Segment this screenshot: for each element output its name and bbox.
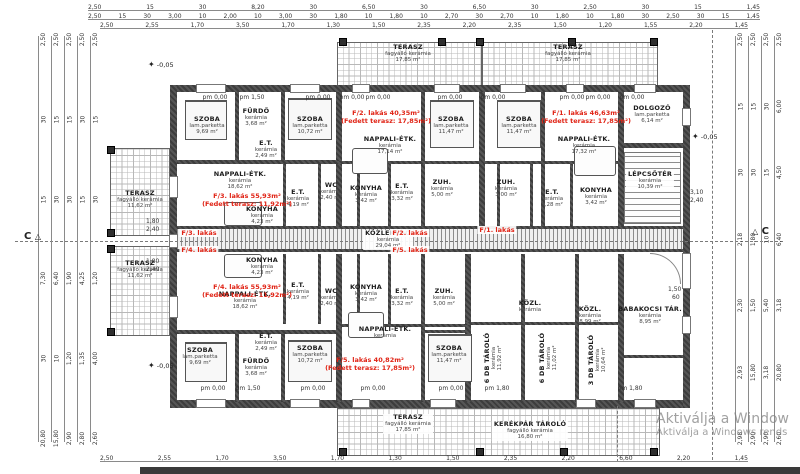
- floor-level-label: pm 0,00: [438, 94, 463, 101]
- wall: [336, 254, 342, 402]
- dim-value: 1,45: [735, 22, 748, 29]
- dim-value: 1,50: [372, 22, 385, 29]
- watermark-line1: Aktiválja a Window: [656, 411, 800, 427]
- dim-value: 30: [53, 195, 60, 203]
- window-opening: [682, 108, 691, 126]
- room-label: KONYHA kerámia 3,42 m²: [350, 284, 382, 304]
- dim-value: 15: [737, 102, 744, 110]
- room-area: 2,40 m²: [320, 301, 342, 307]
- dim-value: 1,70: [215, 455, 228, 462]
- dim-value: 1,90: [67, 272, 74, 285]
- dim-value: 2,50: [100, 455, 113, 462]
- room-label: KONYHA kerámia 3,42 m²: [350, 185, 382, 205]
- room-name: SZOBA: [501, 116, 536, 123]
- dim-value: 2,90: [67, 432, 74, 445]
- dim-value: 6,50: [362, 4, 375, 11]
- floor-level-label: pm 0,00: [439, 385, 464, 392]
- wall: [624, 143, 683, 148]
- dim-value: 2,50: [777, 33, 784, 46]
- dim-value: 60: [672, 294, 680, 301]
- dim-value: 1,50: [751, 299, 758, 312]
- section-label: C: [24, 231, 31, 242]
- room-label: KÖZL. kerámia: [519, 300, 542, 313]
- room-label: SZOBA lam.parketta 10,72 m²: [292, 345, 327, 365]
- wall: [421, 330, 465, 333]
- room-label: E.T. kerámia 3,32 m²: [391, 288, 413, 308]
- wall: [235, 92, 239, 162]
- dim-row-top-3: 2,502,551,703,501,701,301,502,352,202,35…: [100, 20, 748, 29]
- apartment-label: F/2. lakás: [390, 229, 429, 237]
- window-opening: [352, 399, 370, 408]
- dim-value: 2,35: [504, 455, 517, 462]
- apartment-label-line2: (Fedett terasz: 17,85m²): [541, 117, 631, 125]
- apartment-label-line1: F/5. lakás: [392, 246, 427, 254]
- dim-value: 3,00: [279, 13, 292, 20]
- wall: [624, 355, 683, 358]
- dim-value: 15: [92, 115, 99, 123]
- elevation-value: -0,05: [701, 133, 718, 141]
- dim-value: 2,50: [93, 33, 100, 46]
- room-area: 11,02 m²: [553, 333, 559, 384]
- room-area: 4,23 m²: [246, 270, 278, 276]
- apartment-label: F/5. lakás: [390, 246, 429, 254]
- dim-value: 1,45: [746, 13, 759, 20]
- floor-level-label: pm 0,00: [201, 385, 226, 392]
- room-area: 11,47 m²: [501, 129, 536, 135]
- dim-value: 2,55: [158, 455, 171, 462]
- room-area: 17,14 m²: [364, 149, 416, 155]
- room-area: 8,99 m²: [579, 319, 602, 325]
- dim-value: 2,30: [738, 299, 745, 312]
- pillar: [476, 38, 484, 46]
- apartment-label: F/1. lakás 46,63m² (Fedett terasz: 17,85…: [541, 109, 631, 125]
- elevation-marker: ✦ -0,05: [148, 60, 174, 69]
- room-material: kerámia: [519, 307, 542, 313]
- room-area: 16,80 m²: [494, 434, 566, 440]
- room-label: LÉPCSŐTÉR kerámia 10,39 m²: [626, 171, 674, 191]
- pillar: [107, 328, 115, 336]
- section-label: C: [762, 226, 769, 237]
- dim-value: 10: [53, 355, 60, 363]
- pillar: [107, 146, 115, 154]
- dim-value: 2,40: [690, 197, 703, 204]
- axis-line-vertical: [712, 30, 713, 460]
- dim-value: 1,20: [599, 22, 612, 29]
- dim-value: 1,30: [327, 22, 340, 29]
- room-label: 6 DB TÁROLÓ kerámia 11,02 m²: [539, 333, 559, 384]
- dim-value: 10: [420, 13, 428, 20]
- dim-col-left-3: 2,5015301,901,202,90: [64, 36, 75, 442]
- room-area: 6,14 m²: [633, 118, 671, 124]
- floor-plan-drawing: 2,5015308,20306,50306,50302,5030151,45 2…: [0, 0, 800, 474]
- dim-value: 30: [40, 115, 47, 123]
- room-label: SZOBA lam.parketta 10,72 m²: [292, 116, 327, 136]
- dim-value: 10: [365, 13, 373, 20]
- room-label: KONYHA kerámia 4,23 m²: [246, 206, 278, 226]
- room-label: KÖZL. kerámia 8,99 m²: [579, 306, 602, 326]
- dim-value: 30: [420, 4, 428, 11]
- floor-level-label: pm 1,80: [485, 385, 510, 392]
- room-area: 8,95 m²: [618, 319, 682, 325]
- apartment-label: F/3. lakás: [179, 229, 218, 237]
- apartment-label-line1: F/1. lakás: [479, 226, 514, 234]
- window-opening: [682, 316, 691, 334]
- floor-level-label: pm 0,00: [203, 94, 228, 101]
- dim-value: 1,80: [390, 13, 403, 20]
- dim-value: 30: [143, 13, 151, 20]
- apartment-label: F/2. lakás 40,35m² (Fedett terasz: 17,85…: [341, 109, 431, 125]
- apartment-label-line2: (Fedett terasz: 11,92m²): [202, 200, 292, 208]
- dim-value: 30: [750, 169, 757, 177]
- dim-value: 2,50: [666, 13, 679, 20]
- dim-value: 2,40: [146, 266, 159, 273]
- wall: [683, 85, 690, 408]
- dim-value: 8,20: [251, 4, 264, 11]
- room-area: 3,42 m²: [350, 198, 382, 204]
- pillar: [107, 245, 115, 253]
- dim-value: 10: [199, 13, 207, 20]
- dim-value: 6,00: [777, 99, 784, 112]
- dim-value: 15,80: [54, 430, 61, 447]
- room-name: SZOBA: [431, 345, 466, 352]
- dim-value: 30: [475, 13, 483, 20]
- apartment-label-line1: F/5. lakás 40,82m²: [325, 356, 415, 364]
- dim-value: 15: [750, 102, 757, 110]
- dim-value: 20,80: [41, 430, 48, 447]
- room-material: kerámia: [359, 333, 411, 339]
- floor-level-label: pm 0,00: [301, 385, 326, 392]
- dim-value: 30: [199, 4, 207, 11]
- dim-value: 15: [694, 4, 702, 11]
- room-area: 3,42 m²: [580, 200, 612, 206]
- dim-value: 6,40: [777, 232, 784, 245]
- room-area: 3,00 m²: [495, 192, 517, 198]
- dim-value: 1,20: [93, 272, 100, 285]
- window-opening: [196, 399, 226, 408]
- room-area: 3,68 m²: [243, 121, 270, 127]
- dim-value: 2,50: [54, 33, 61, 46]
- room-label: TERASZ fagyálló kerámia 11,62 m²: [117, 190, 163, 210]
- room-area: 17,32 m²: [558, 149, 610, 155]
- dim-value: 30: [737, 169, 744, 177]
- floor-level-label: pm 1,50: [240, 94, 265, 101]
- dim-value: 30: [92, 195, 99, 203]
- wall: [177, 249, 683, 252]
- dim-value: 3,50: [236, 22, 249, 29]
- dim-value: 2,50: [583, 4, 596, 11]
- room-area: 2,40 m²: [320, 195, 342, 201]
- apartment-label: F/4. lakás 55,93m² (Fedett terasz: 11,92…: [202, 283, 292, 299]
- elevation-star-icon: ✦: [148, 60, 155, 69]
- dim-value: 30: [531, 4, 539, 11]
- dim-value: 1,50: [553, 22, 566, 29]
- elevation-marker: ✦ -0,05: [692, 132, 718, 141]
- room-area: 9,69 m²: [182, 360, 217, 366]
- dim-value: 30: [40, 355, 47, 363]
- dim-value: 1,50: [668, 286, 681, 293]
- dim-value: 2,50: [764, 33, 771, 46]
- room-label: SZOBA lam.parketta 11,47 m²: [431, 345, 466, 365]
- elevation-marker: ✦ -0,05: [148, 361, 174, 370]
- dim-value: 4,00: [93, 352, 100, 365]
- entrance-door-swing: [650, 253, 681, 284]
- room-area: 10,39 m²: [628, 184, 672, 190]
- window-opening: [290, 399, 320, 408]
- dim-value: 4,25: [80, 272, 87, 285]
- apartment-label: F/1. lakás: [477, 226, 516, 234]
- dim-value: 3,00: [168, 13, 181, 20]
- dim-value: 1,70: [281, 22, 294, 29]
- apartment-label: F/4. lakás: [179, 246, 218, 254]
- dim-value: 15: [66, 115, 73, 123]
- room-area: 5,00 m²: [433, 301, 455, 307]
- window-opening: [500, 84, 526, 93]
- room-label: 6 DB TÁROLÓ kerámia 11,92 m²: [484, 333, 504, 384]
- dim-col-left-2: 2,5015306,401015,80: [51, 36, 62, 442]
- dim-value: 2,50: [751, 33, 758, 46]
- apartment-label-line1: F/2. lakás: [392, 229, 427, 237]
- pillar: [438, 38, 446, 46]
- section-marker-left: C △: [24, 231, 41, 242]
- dim-value: 1,80: [146, 218, 159, 225]
- wall: [530, 164, 533, 226]
- dim-value: 1,70: [331, 455, 344, 462]
- dim-row-bottom: 2,502,551,703,501,701,301,502,352,206,60…: [100, 453, 748, 462]
- room-label: E.T. kerámia 2,49 m²: [255, 333, 277, 353]
- apartment-label: F/5. lakás 40,82m² (Fedett terasz: 17,85…: [325, 356, 415, 372]
- dim-col-left-4: 2,5030154,251,352,80: [77, 36, 88, 442]
- dim-value: 2,55: [145, 22, 158, 29]
- floor-level-label: pm 0,00: [586, 94, 611, 101]
- elevation-value: -0,05: [157, 61, 174, 69]
- room-area: 11,92 m²: [498, 333, 504, 384]
- dim-col-right-2: 2,5015301,801,5015,802,90: [748, 36, 759, 442]
- dim-value: 2,80: [80, 432, 87, 445]
- window-opening: [430, 399, 456, 408]
- apartment-label-line2: (Fedett terasz: 17,85m²): [325, 364, 415, 372]
- wall: [170, 85, 690, 92]
- room-label: NAPPALI-ÉTK. kerámia 17,32 m²: [558, 136, 610, 156]
- room-label: E.T. kerámia 3,28 m²: [541, 189, 563, 209]
- window-opening: [566, 84, 584, 93]
- dim-value: 1,35: [80, 352, 87, 365]
- room-label: TERASZ fagyálló kerámia 17,85 m²: [545, 44, 591, 64]
- room-name: SZOBA: [433, 116, 468, 123]
- dim-value: 2,35: [417, 22, 430, 29]
- dim-col-left-5: 2,5015301,204,002,60: [90, 36, 101, 442]
- room-area: 4,23 m²: [246, 219, 278, 225]
- dim-value: 10: [254, 13, 262, 20]
- wall: [281, 332, 285, 402]
- dim-value: 15,80: [751, 363, 758, 380]
- dim-value: 2,00: [224, 13, 237, 20]
- room-label: SZOBA lam.parketta 9,69 m²: [189, 116, 224, 136]
- room-area: 17,85 m²: [545, 57, 591, 63]
- room-label: SZOBA lam.parketta 11,47 m²: [501, 116, 536, 136]
- dim-value: 3,50: [273, 455, 286, 462]
- room-label: NAPPALI-ÉTK. kerámia 17,14 m²: [364, 136, 416, 156]
- apartment-label-line1: F/2. lakás 40,35m²: [341, 109, 431, 117]
- room-area: 2,49 m²: [255, 346, 277, 352]
- apartment-label-line2: (Fedett terasz: 17,85m²): [341, 117, 431, 125]
- dim-value: 30: [641, 13, 649, 20]
- dim-value: 15: [119, 13, 127, 20]
- dim-value: 20,80: [777, 363, 784, 380]
- apartment-label-line1: F/3. lakás 55,93m²: [202, 192, 292, 200]
- dim-value: 1,80: [334, 13, 347, 20]
- room-name: SZOBA: [292, 345, 327, 352]
- room-area: 10,64 m²: [602, 335, 608, 386]
- room-name: DOLGOZÓ: [633, 105, 671, 112]
- window-opening: [352, 84, 370, 93]
- window-opening: [634, 84, 656, 93]
- room-label: FÜRDŐ kerámia 3,68 m²: [243, 108, 270, 128]
- dim-value: 2,20: [689, 22, 702, 29]
- room-area: 18,62 m²: [219, 304, 271, 310]
- dim-value: 30: [697, 13, 705, 20]
- room-label: KONYHA kerámia 3,42 m²: [580, 187, 612, 207]
- dim-row-top-1: 2,5015308,20306,50306,50302,5030151,45: [88, 2, 760, 11]
- dim-value: 10: [531, 13, 539, 20]
- dim-value: 2,18: [738, 232, 745, 245]
- floor-level-label: pm 1,50: [236, 385, 261, 392]
- room-label: E.T. kerámia 2,49 m²: [255, 140, 277, 160]
- section-triangle-icon: △: [35, 232, 41, 241]
- dim-value: 1,55: [644, 22, 657, 29]
- room-label: ZUH. kerámia 5,00 m²: [433, 288, 455, 308]
- room-area: 3,32 m²: [391, 196, 413, 202]
- floor-level-label: pm 0,00: [620, 94, 645, 101]
- dim-value: 5,40: [764, 299, 771, 312]
- dim-value: 30: [309, 13, 317, 20]
- room-area: 5,00 m²: [431, 192, 453, 198]
- floor-level-label: pm 1,80: [618, 385, 643, 392]
- apartment-label-line2: (Fedett terasz: 11,92m²): [202, 291, 292, 299]
- dim-value: 2,35: [508, 22, 521, 29]
- room-area: 3,42 m²: [350, 297, 382, 303]
- window-opening: [169, 296, 178, 318]
- room-area: 2,49 m²: [255, 153, 277, 159]
- dim-value: 1,70: [191, 22, 204, 29]
- room-label: TERASZ fagyálló kerámia 17,85 m²: [383, 414, 433, 434]
- dim-value: 7,30: [41, 272, 48, 285]
- dim-value: 1,80: [611, 13, 624, 20]
- room-label: NAPPALI-ÉTK. kerámia 18,62 m²: [214, 171, 266, 191]
- dim-value: 3,18: [777, 299, 784, 312]
- floor-level-label: pm 0,00: [306, 94, 331, 101]
- room-area: 11,47 m²: [433, 129, 468, 135]
- room-label: TERASZ fagyálló kerámia 17,85 m²: [385, 44, 431, 64]
- section-marker-right: △ C: [752, 226, 769, 237]
- dim-value: 2,50: [88, 13, 101, 20]
- dim-value: 10: [586, 13, 594, 20]
- room-label: 3 DB TÁROLÓ kerámia 10,64 m²: [588, 335, 608, 386]
- dim-value: 1,45: [735, 455, 748, 462]
- room-area: 11,62 m²: [117, 203, 163, 209]
- dim-col-right-4: 2,506,004,506,403,1820,802,60: [774, 36, 785, 442]
- floor-level-label: pm 0,00: [366, 94, 391, 101]
- elevation-star-icon: ✦: [692, 132, 699, 141]
- dim-value: 2,20: [463, 22, 476, 29]
- dim-value: 1,45: [747, 4, 760, 11]
- room-label: SZOBA lam.parketta 11,47 m²: [433, 116, 468, 136]
- pillar: [339, 38, 347, 46]
- room-label: WC kerámia 2,40 m²: [320, 288, 342, 308]
- room-label: ZUH. kerámia 3,00 m²: [495, 179, 517, 199]
- room-area: 3,28 m²: [541, 202, 563, 208]
- dim-col-right-3: 2,503015105,403,182,90: [761, 36, 772, 442]
- room-label: DOLGOZÓ lam.parketta 6,14 m²: [633, 105, 671, 125]
- wall: [177, 160, 337, 164]
- room-name: SZOBA: [292, 116, 327, 123]
- dim-value: 30: [642, 4, 650, 11]
- room-label: E.T. kerámia 3,32 m²: [391, 183, 413, 203]
- windows-activation-watermark: Aktiválja a Window Aktiválja a Windows r…: [656, 411, 800, 438]
- room-area: 18,62 m²: [214, 184, 266, 190]
- room-label: ZUH. kerámia 5,00 m²: [431, 179, 453, 199]
- entrance-door-opening: [682, 253, 691, 289]
- apartment-label-line1: F/4. lakás 55,93m²: [202, 283, 292, 291]
- wall: [570, 164, 573, 226]
- room-area: 10,72 m²: [292, 129, 327, 135]
- apartment-label-line1: F/1. lakás 46,63m²: [541, 109, 631, 117]
- dim-value: 30: [763, 102, 770, 110]
- room-area: 11,47 m²: [431, 358, 466, 364]
- floor-level-label: pm 0,00: [560, 94, 585, 101]
- dim-value: 4,50: [777, 166, 784, 179]
- dim-value: 2,50: [80, 33, 87, 46]
- window-opening: [634, 399, 656, 408]
- room-label: KONYHA kerámia 4,23 m²: [246, 257, 278, 277]
- room-label: NAPPALI-ÉTK. kerámia: [359, 326, 411, 339]
- watermark-line2: Aktiválja a Windows rends: [656, 427, 800, 438]
- dim-value: 2,20: [562, 455, 575, 462]
- dim-value: 15: [763, 169, 770, 177]
- room-area: 3,32 m²: [391, 301, 413, 307]
- dim-value: 3,18: [764, 365, 771, 378]
- room-label: KERÉKPÁR TÁROLÓ fagyálló kerámia 16,80 m…: [492, 421, 568, 441]
- pillar: [650, 38, 658, 46]
- dim-value: 2,50: [67, 33, 74, 46]
- section-triangle-icon: △: [752, 227, 758, 236]
- dim-value: 3,10: [690, 189, 703, 196]
- room-label: BABAKOCSI TÁR. kerámia 8,95 m²: [618, 306, 682, 326]
- pillar: [107, 229, 115, 237]
- dim-value: 2,70: [445, 13, 458, 20]
- room-area: 17,85 m²: [385, 57, 431, 63]
- dim-value: 1,80: [146, 258, 159, 265]
- dim-value: 30: [66, 195, 73, 203]
- wall: [575, 254, 579, 402]
- dim-value: 15: [722, 13, 730, 20]
- floor-level-label: pm 0,00: [361, 385, 386, 392]
- window-opening: [434, 84, 460, 93]
- bottom-dark-strip: [140, 467, 800, 474]
- dim-row-top-2: 2,5015303,00102,00103,00301,80101,80102,…: [88, 11, 760, 20]
- dim-value: 2,50: [88, 4, 101, 11]
- window-opening: [169, 176, 178, 198]
- room-label: SZOBA lam.parketta 9,69 m²: [182, 347, 217, 367]
- dim-value: 1,30: [388, 455, 401, 462]
- window-opening: [576, 399, 596, 408]
- wall: [521, 254, 525, 402]
- dim-value: 2,50: [100, 22, 113, 29]
- floor-level-label: pm 0,00: [481, 94, 506, 101]
- elevation-star-icon: ✦: [148, 361, 155, 370]
- room-area: 9,69 m²: [189, 129, 224, 135]
- window-opening: [290, 84, 320, 93]
- dim-value: 15: [79, 195, 86, 203]
